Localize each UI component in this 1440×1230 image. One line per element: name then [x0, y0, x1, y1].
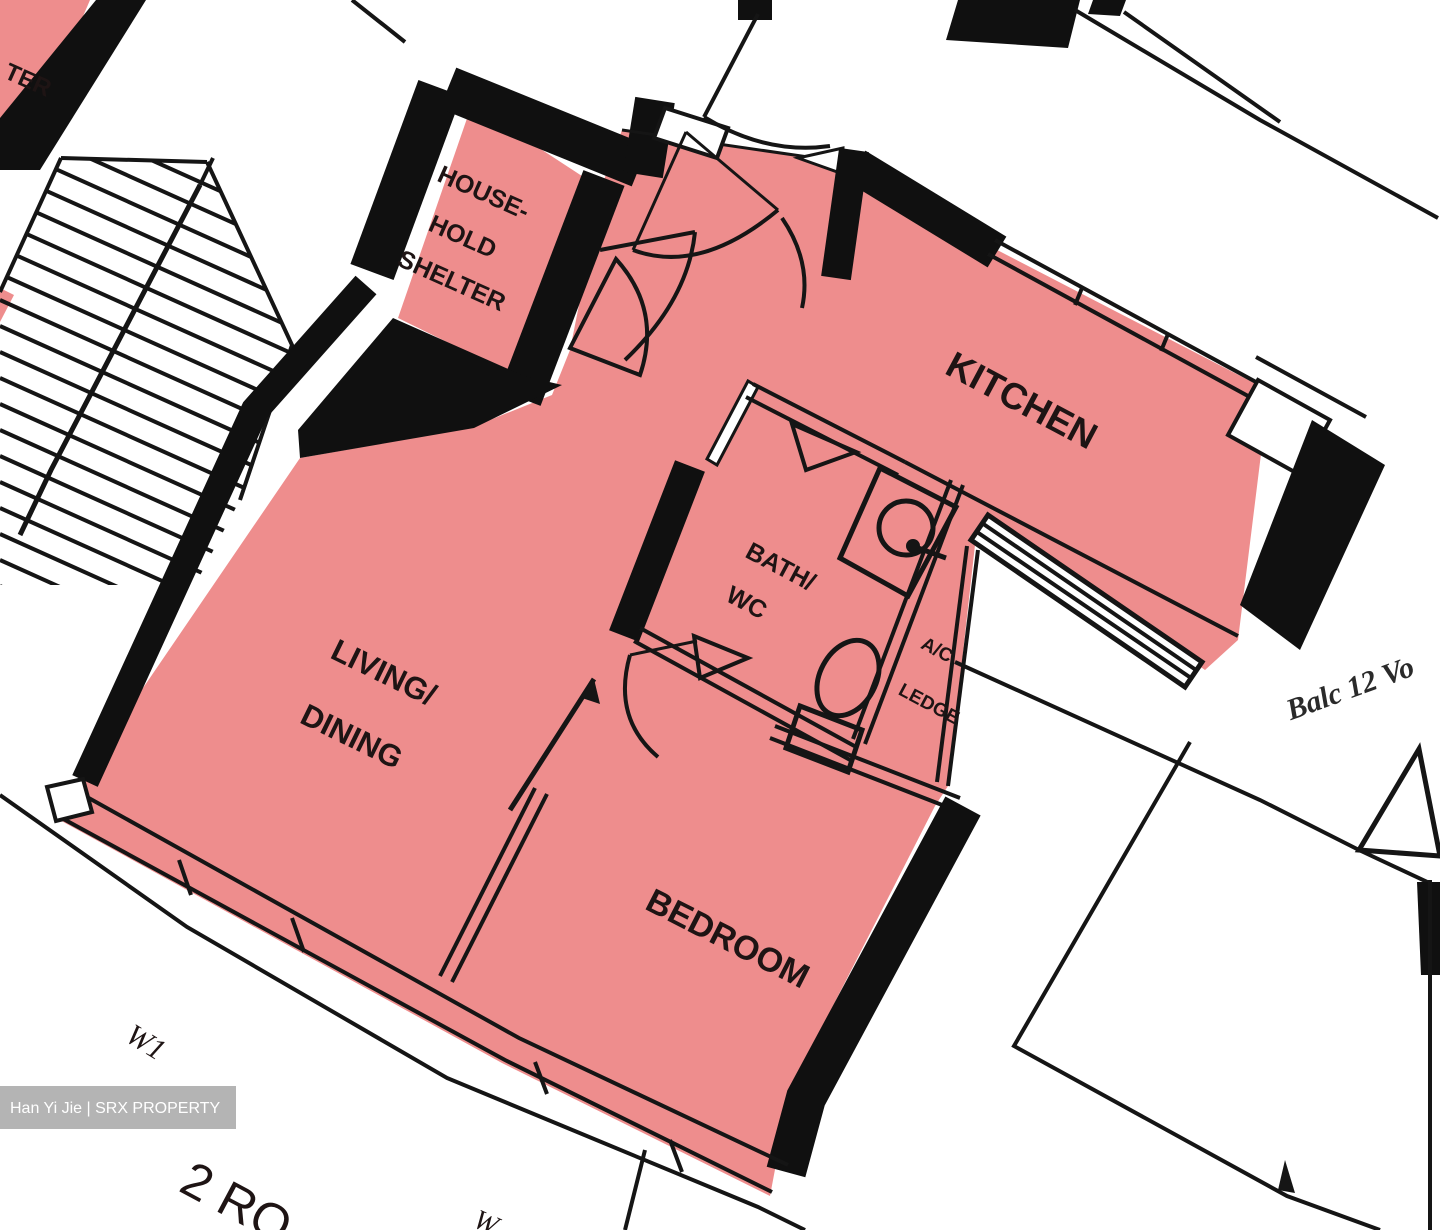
- svg-text:Han Yi Jie | SRX PROPERTY: Han Yi Jie | SRX PROPERTY: [10, 1100, 220, 1117]
